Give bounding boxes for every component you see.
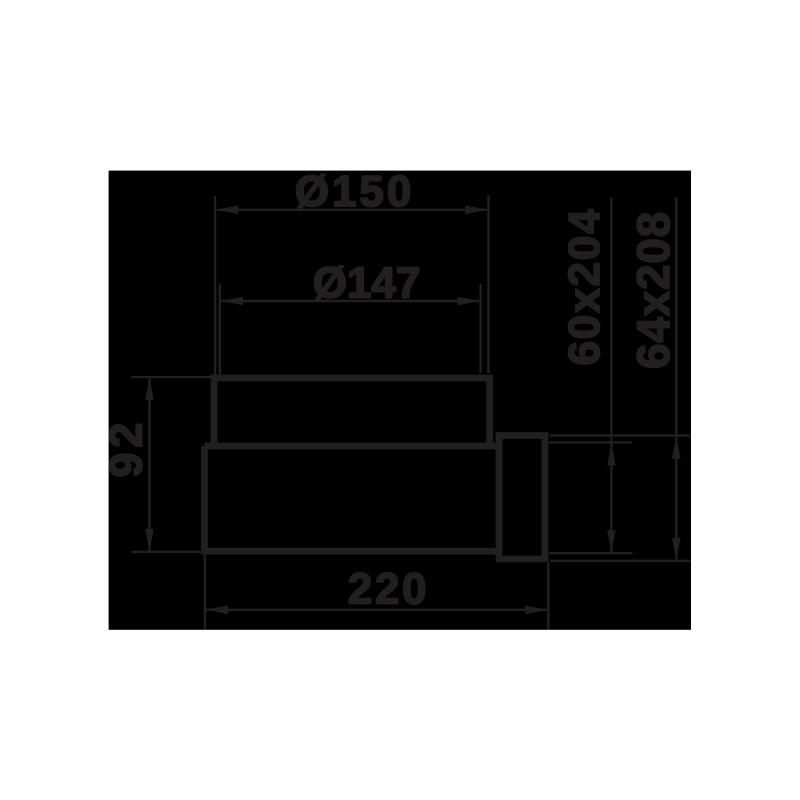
svg-text:64x208: 64x208 — [628, 211, 679, 369]
svg-text:Ø150: Ø150 — [295, 167, 415, 216]
svg-text:92: 92 — [101, 418, 152, 478]
svg-text:Ø147: Ø147 — [313, 259, 421, 308]
svg-text:220: 220 — [348, 565, 429, 614]
svg-text:60x204: 60x204 — [560, 207, 609, 365]
